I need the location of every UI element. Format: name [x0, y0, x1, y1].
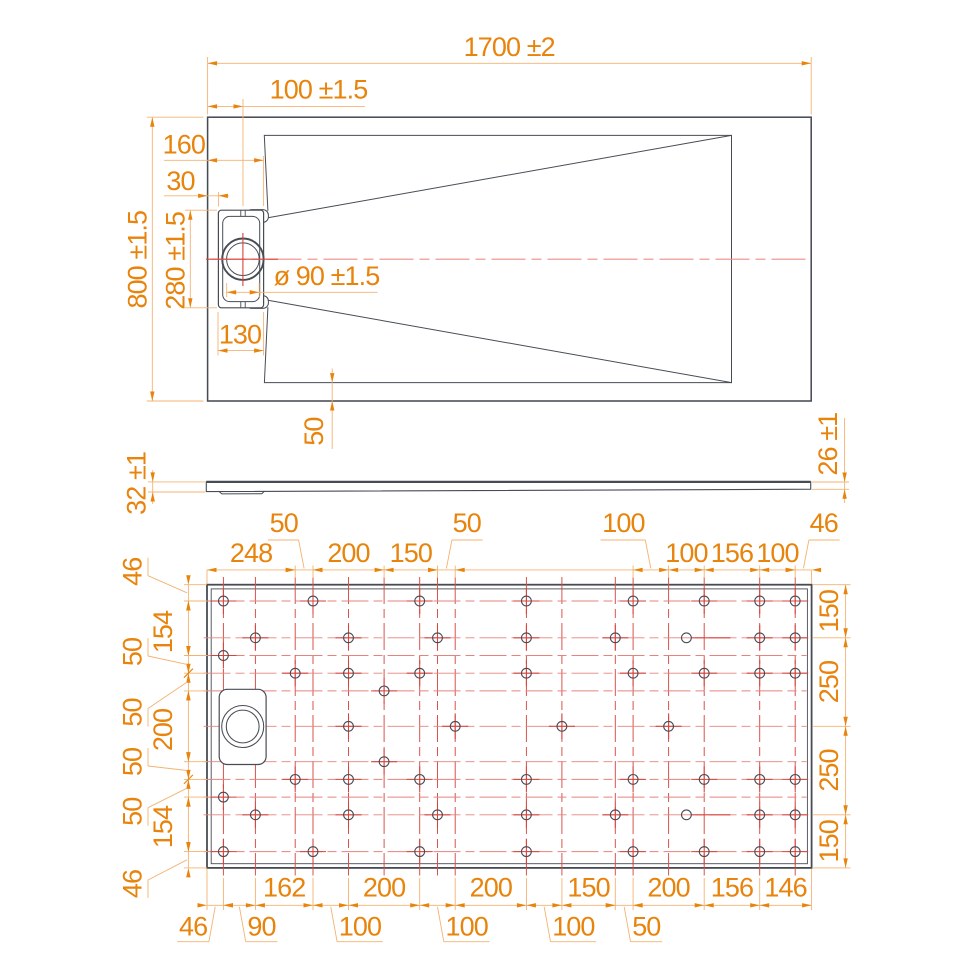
svg-text:50: 50 — [453, 508, 481, 538]
svg-text:30: 30 — [166, 166, 194, 196]
svg-text:200: 200 — [647, 872, 689, 902]
svg-text:162: 162 — [263, 872, 305, 902]
svg-text:1700 ±2: 1700 ±2 — [464, 32, 555, 62]
svg-text:160: 160 — [163, 129, 205, 159]
svg-text:100: 100 — [552, 911, 594, 941]
svg-text:50: 50 — [118, 698, 148, 726]
svg-text:250: 250 — [814, 749, 844, 791]
svg-text:50: 50 — [118, 748, 148, 776]
svg-text:50: 50 — [118, 798, 148, 826]
svg-text:250: 250 — [814, 661, 844, 703]
svg-text:200: 200 — [327, 538, 369, 568]
svg-text:280 ±1.5: 280 ±1.5 — [160, 212, 190, 310]
svg-text:46: 46 — [118, 558, 148, 586]
svg-text:90: 90 — [247, 911, 275, 941]
svg-text:130: 130 — [219, 320, 261, 350]
svg-text:150: 150 — [390, 538, 432, 568]
svg-text:50: 50 — [632, 911, 660, 941]
svg-text:100: 100 — [665, 538, 707, 568]
svg-text:100: 100 — [756, 538, 798, 568]
svg-text:156: 156 — [711, 538, 753, 568]
svg-text:100: 100 — [339, 911, 381, 941]
svg-text:156: 156 — [711, 872, 753, 902]
svg-text:50: 50 — [118, 638, 148, 666]
svg-text:100: 100 — [602, 508, 644, 538]
svg-text:150: 150 — [567, 872, 609, 902]
svg-text:32 ±1: 32 ±1 — [122, 452, 152, 515]
svg-text:50: 50 — [270, 508, 298, 538]
svg-text:50: 50 — [299, 417, 329, 445]
svg-text:100 ±1.5: 100 ±1.5 — [270, 75, 368, 105]
svg-text:46: 46 — [810, 508, 838, 538]
svg-text:200: 200 — [148, 709, 178, 751]
svg-text:26 ±1: 26 ±1 — [813, 413, 843, 476]
svg-text:46: 46 — [118, 870, 148, 898]
svg-text:200: 200 — [363, 872, 405, 902]
svg-text:248: 248 — [230, 538, 272, 568]
svg-text:154: 154 — [148, 610, 178, 653]
svg-text:200: 200 — [470, 872, 512, 902]
svg-text:ø 90 ±1.5: ø 90 ±1.5 — [274, 261, 380, 291]
svg-text:100: 100 — [446, 911, 488, 941]
svg-text:150: 150 — [814, 590, 844, 632]
svg-text:146: 146 — [764, 872, 806, 902]
svg-text:150: 150 — [814, 820, 844, 862]
svg-text:46: 46 — [179, 911, 207, 941]
svg-text:800 ±1.5: 800 ±1.5 — [122, 211, 152, 309]
svg-text:154: 154 — [148, 805, 178, 848]
